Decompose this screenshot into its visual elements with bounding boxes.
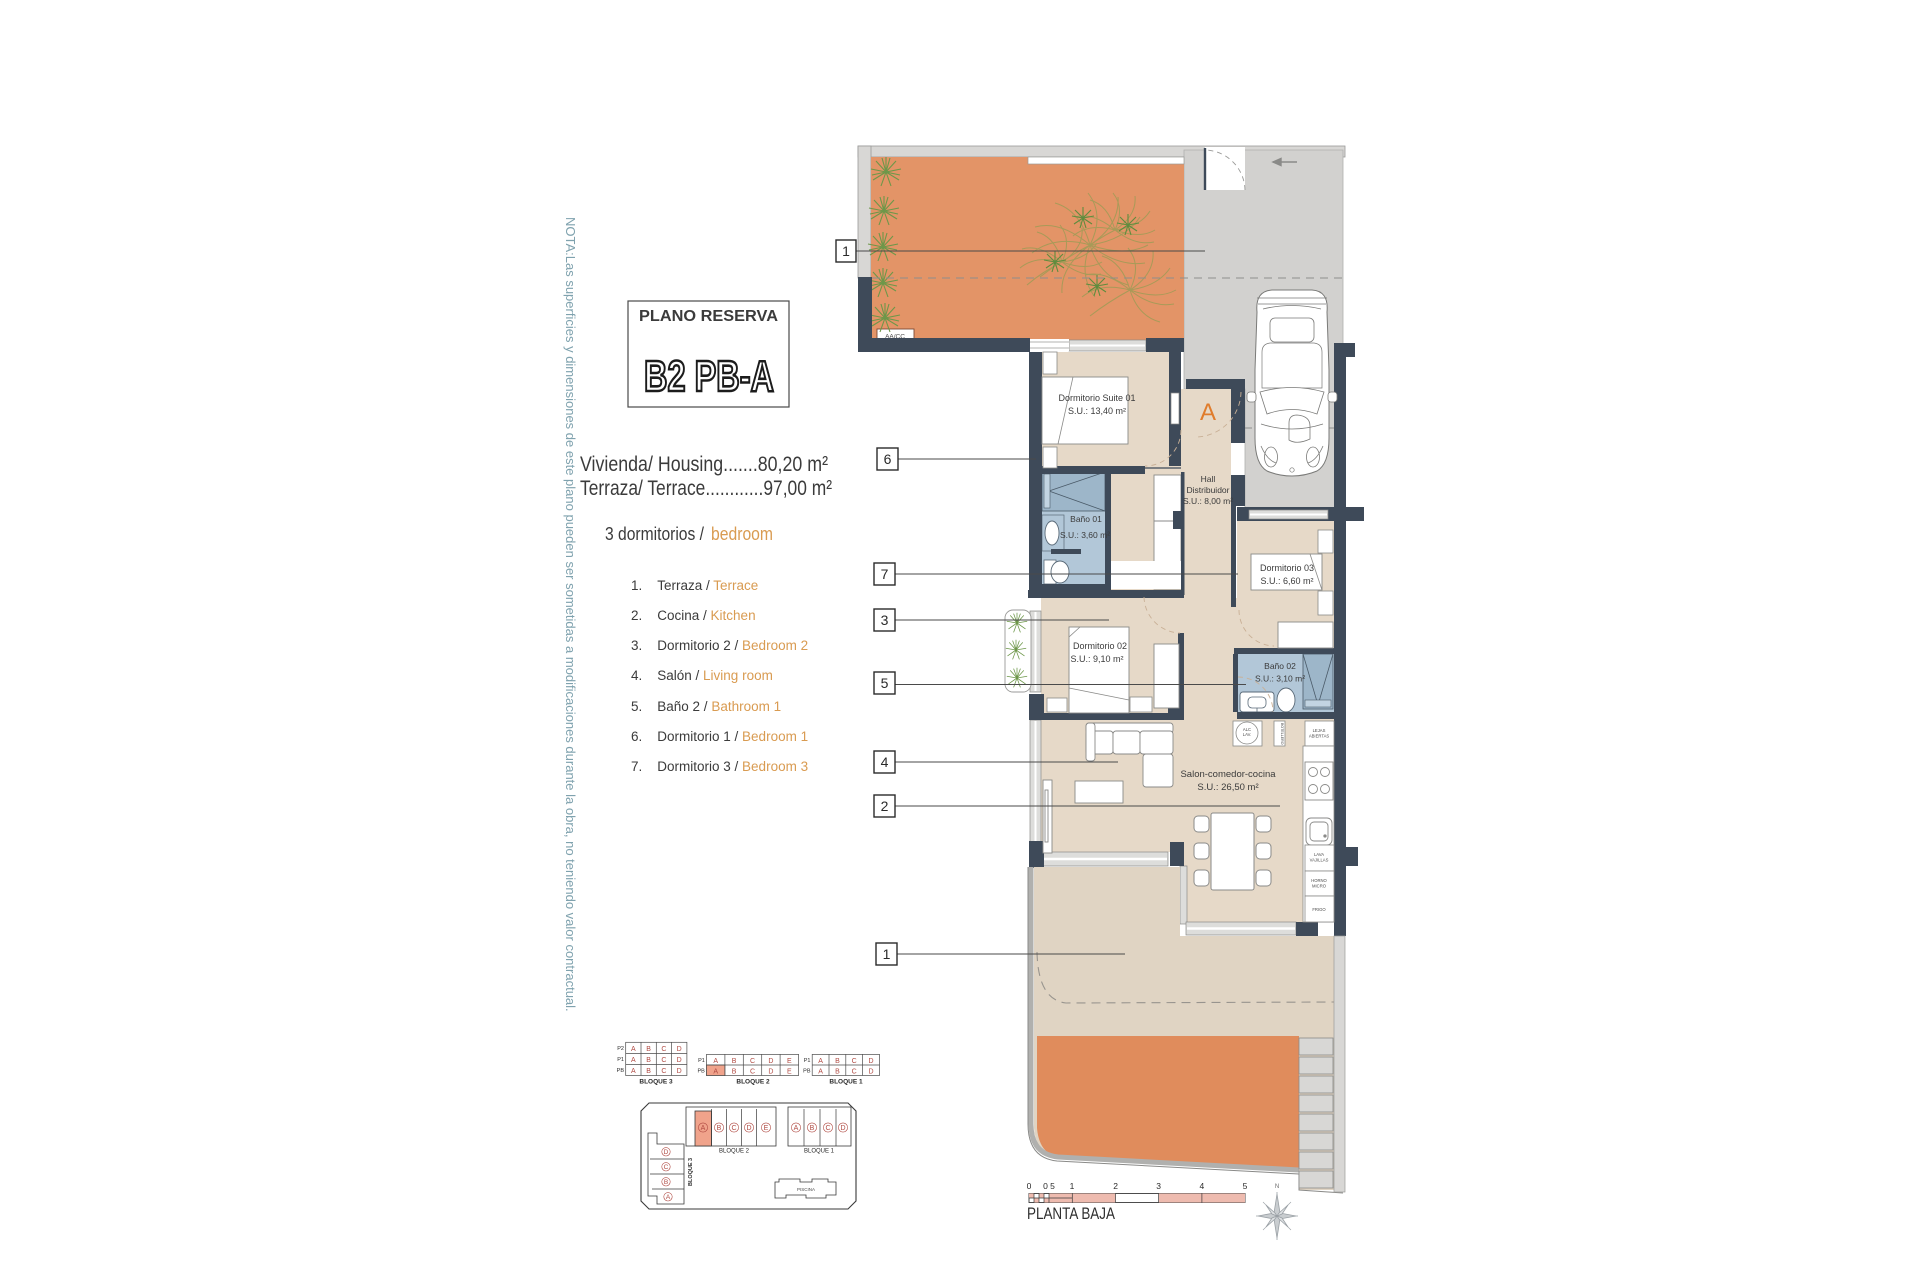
- svg-text:C: C: [825, 1125, 830, 1132]
- svg-text:BLOQUE 1: BLOQUE 1: [804, 1149, 835, 1155]
- svg-text:C: C: [664, 1164, 669, 1171]
- svg-text:4: 4: [881, 754, 889, 770]
- svg-text:A: A: [666, 1194, 671, 1201]
- svg-text:5: 5: [881, 675, 889, 691]
- svg-text:S.U.: 9,10 m²: S.U.: 9,10 m²: [1070, 654, 1123, 664]
- svg-text:B: B: [732, 1058, 737, 1065]
- svg-text:B: B: [646, 1046, 651, 1053]
- svg-text:A: A: [713, 1068, 718, 1075]
- svg-text:B: B: [835, 1058, 840, 1065]
- svg-text:D: D: [868, 1068, 873, 1075]
- svg-text:C: C: [661, 1068, 666, 1075]
- svg-text:C: C: [731, 1125, 736, 1132]
- svg-text:A: A: [631, 1068, 636, 1075]
- svg-text:3. Dormitorio 2 / Bedroom 2: 3. Dormitorio 2 / Bedroom 2: [631, 638, 808, 653]
- svg-text:A: A: [1200, 399, 1216, 426]
- svg-text:BLOQUE 3: BLOQUE 3: [639, 1079, 673, 1086]
- svg-text:B: B: [835, 1068, 840, 1075]
- svg-text:BLOQUE 3: BLOQUE 3: [688, 1158, 694, 1186]
- svg-text:D: D: [768, 1068, 773, 1075]
- svg-text:S.U.: 8,00 m²: S.U.: 8,00 m²: [1183, 496, 1233, 506]
- svg-text:6. Dormitorio 1 / Bedroom 1: 6. Dormitorio 1 / Bedroom 1: [631, 729, 808, 744]
- svg-text:1: 1: [1070, 1181, 1075, 1191]
- svg-text:S.U.: 3,10 m²: S.U.: 3,10 m²: [1255, 674, 1305, 684]
- svg-text:C: C: [750, 1058, 755, 1065]
- svg-text:PLANO RESERVA: PLANO RESERVA: [639, 308, 778, 325]
- svg-text:MICRO: MICRO: [1312, 884, 1327, 889]
- svg-text:B: B: [664, 1179, 668, 1186]
- svg-text:B: B: [717, 1125, 722, 1132]
- svg-text:BOTELLERO: BOTELLERO: [1280, 723, 1284, 745]
- svg-text:D: D: [840, 1125, 845, 1132]
- svg-text:1. Terraza / Terrace: 1. Terraza / Terrace: [631, 578, 758, 593]
- svg-text:Dormitorio 03: Dormitorio 03: [1260, 563, 1314, 573]
- svg-text:P2: P2: [617, 1046, 624, 1052]
- svg-text:Dormitorio Suite 01: Dormitorio Suite 01: [1058, 393, 1135, 403]
- svg-text:D: D: [664, 1149, 669, 1156]
- svg-text:FRIGO: FRIGO: [1312, 907, 1326, 912]
- svg-text:LAVA: LAVA: [1314, 852, 1324, 857]
- svg-text:VAJILLAS: VAJILLAS: [1310, 858, 1329, 863]
- svg-text:2. Cocina / Kitchen: 2. Cocina / Kitchen: [631, 608, 756, 623]
- svg-text:PLANTA BAJA: PLANTA BAJA: [1027, 1204, 1116, 1223]
- svg-text:A: A: [818, 1058, 823, 1065]
- svg-text:D: D: [768, 1058, 773, 1065]
- svg-text:ABIERTAS: ABIERTAS: [1309, 734, 1330, 739]
- svg-text:S.U.: 3,60 m²: S.U.: 3,60 m²: [1060, 530, 1110, 540]
- svg-text:BLOQUE 2: BLOQUE 2: [719, 1149, 750, 1155]
- svg-text:E: E: [787, 1068, 792, 1075]
- svg-text:A: A: [794, 1125, 799, 1132]
- svg-text:C: C: [852, 1058, 857, 1065]
- svg-text:P1: P1: [698, 1058, 705, 1064]
- svg-text:S.U.: 13,40 m²: S.U.: 13,40 m²: [1068, 406, 1126, 416]
- svg-text:D: D: [746, 1125, 751, 1132]
- svg-text:LEJAS: LEJAS: [1313, 728, 1326, 733]
- svg-text:3 dormitorios /: 3 dormitorios /: [605, 524, 704, 544]
- svg-text:Distribuidor: Distribuidor: [1187, 485, 1230, 495]
- svg-text:PISCINA: PISCINA: [797, 1187, 815, 1192]
- svg-text:N: N: [1275, 1184, 1279, 1190]
- svg-text:4: 4: [1200, 1181, 1205, 1191]
- svg-text:0 5: 0 5: [1043, 1181, 1055, 1191]
- svg-text:Vivienda/ Housing.......80,20: Vivienda/ Housing.......80,20 m²: [580, 453, 828, 476]
- svg-text:0: 0: [1027, 1181, 1032, 1191]
- svg-text:Hall: Hall: [1201, 474, 1216, 484]
- svg-text:5: 5: [1243, 1181, 1248, 1191]
- svg-text:bedroom: bedroom: [711, 524, 773, 544]
- svg-text:HORNO: HORNO: [1311, 878, 1327, 883]
- svg-text:C: C: [852, 1068, 857, 1075]
- svg-text:5. Baño 2 / Bathroom 1: 5. Baño 2 / Bathroom 1: [631, 699, 781, 714]
- svg-text:1: 1: [883, 946, 891, 962]
- svg-text:3: 3: [1156, 1181, 1161, 1191]
- svg-text:A: A: [713, 1058, 718, 1065]
- svg-text:BLOQUE 2: BLOQUE 2: [736, 1079, 770, 1086]
- svg-text:PB: PB: [803, 1068, 811, 1074]
- svg-text:BLOQUE 1: BLOQUE 1: [829, 1079, 863, 1086]
- svg-text:C: C: [750, 1068, 755, 1075]
- svg-text:B: B: [646, 1057, 651, 1064]
- svg-text:PB: PB: [697, 1068, 705, 1074]
- svg-text:PB: PB: [617, 1068, 625, 1074]
- svg-text:D: D: [677, 1068, 682, 1075]
- svg-text:Baño 01: Baño 01: [1070, 514, 1102, 524]
- svg-text:S.U.: 26,50 m²: S.U.: 26,50 m²: [1197, 782, 1258, 793]
- svg-text:B: B: [810, 1125, 815, 1132]
- svg-text:1: 1: [842, 243, 850, 259]
- svg-text:B: B: [732, 1068, 737, 1075]
- svg-text:B2 PB-A: B2 PB-A: [644, 352, 774, 401]
- svg-text:2: 2: [881, 798, 889, 814]
- svg-text:A: A: [631, 1057, 636, 1064]
- svg-text:7: 7: [881, 566, 889, 582]
- svg-text:Terraza/ Terrace............97: Terraza/ Terrace............97,00 m²: [580, 477, 832, 500]
- svg-text:D: D: [677, 1057, 682, 1064]
- svg-text:2: 2: [1113, 1181, 1118, 1191]
- svg-text:C: C: [661, 1046, 666, 1053]
- svg-text:A: A: [701, 1125, 706, 1132]
- svg-text:E: E: [787, 1058, 792, 1065]
- svg-text:C: C: [661, 1057, 666, 1064]
- svg-text:D: D: [677, 1046, 682, 1053]
- svg-text:P1: P1: [617, 1057, 624, 1063]
- svg-text:LAV.: LAV.: [1243, 732, 1251, 737]
- svg-text:7. Dormitorio 3 / Bedroom 3: 7. Dormitorio 3 / Bedroom 3: [631, 759, 808, 774]
- svg-text:6: 6: [884, 451, 892, 467]
- svg-text:S.U.: 6,60 m²: S.U.: 6,60 m²: [1260, 576, 1313, 586]
- svg-text:E: E: [764, 1125, 769, 1132]
- svg-text:Baño 02: Baño 02: [1264, 661, 1296, 671]
- svg-text:A: A: [631, 1046, 636, 1053]
- svg-text:B: B: [646, 1068, 651, 1075]
- svg-text:NOTA:Las superficies y dimensi: NOTA:Las superficies y dimensiones de es…: [563, 217, 578, 1012]
- svg-text:P1: P1: [804, 1058, 811, 1064]
- svg-text:3: 3: [881, 612, 889, 628]
- svg-text:D: D: [868, 1058, 873, 1065]
- svg-text:4. Salón / Living room: 4. Salón / Living room: [631, 668, 773, 683]
- svg-text:Salon-comedor-cocina: Salon-comedor-cocina: [1180, 769, 1276, 780]
- svg-text:A: A: [818, 1068, 823, 1075]
- svg-text:Dormitorio 02: Dormitorio 02: [1073, 641, 1127, 651]
